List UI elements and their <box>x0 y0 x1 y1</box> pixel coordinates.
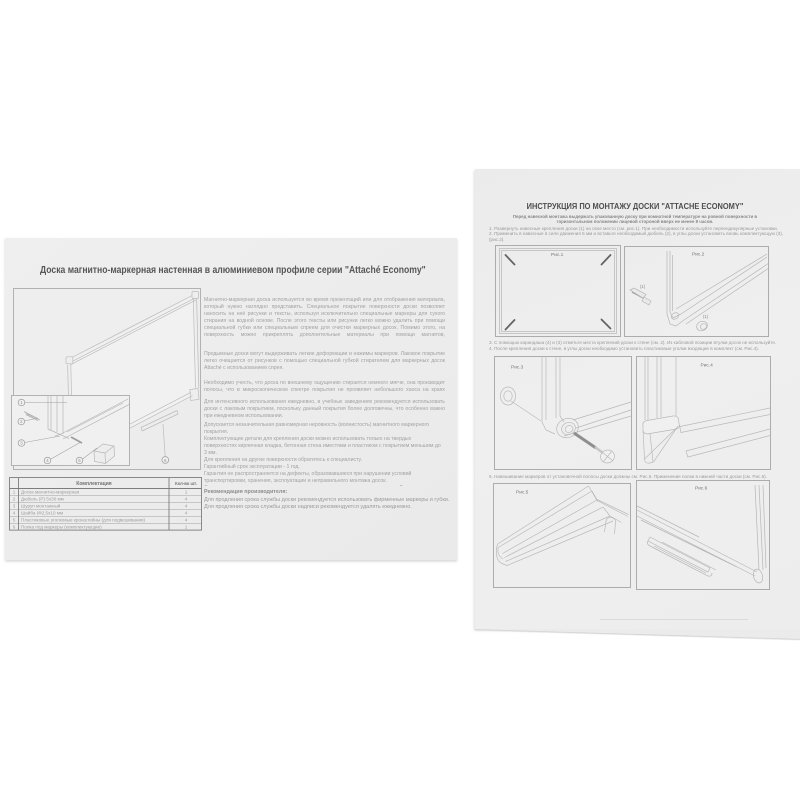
svg-text:4: 4 <box>185 518 188 523</box>
svg-text:Дюбель (P) 5х30 мм: Дюбель (P) 5х30 мм <box>21 497 64 502</box>
svg-text:5: 5 <box>13 518 16 523</box>
svg-text:Рис.4: Рис.4 <box>701 363 714 369</box>
svg-text:4: 4 <box>185 504 188 509</box>
svg-text:2: 2 <box>13 497 16 502</box>
svg-text:Рис.3: Рис.3 <box>511 365 524 371</box>
svg-text:Пластиковые уголковые кронштей: Пластиковые уголковые кронштейны (для по… <box>21 517 146 523</box>
svg-text:Рис.5: Рис.5 <box>516 490 529 496</box>
svg-text:1: 1 <box>13 490 16 495</box>
svg-text:6: 6 <box>13 525 16 530</box>
svg-text:1: 1 <box>185 525 188 530</box>
svg-text:(1): (1) <box>703 314 709 319</box>
svg-text:Рис.1: Рис.1 <box>551 252 564 258</box>
svg-text:Рис.6: Рис.6 <box>695 486 708 492</box>
svg-text:Полка под маркеры (комплектующ: Полка под маркеры (комплектующие) <box>21 525 102 530</box>
svg-text:4: 4 <box>185 511 188 516</box>
svg-text:(1): (1) <box>640 284 646 289</box>
svg-text:1: 1 <box>185 490 188 495</box>
svg-text:Шайба (Ф2,5х10 мм: Шайба (Ф2,5х10 мм <box>21 510 63 516</box>
svg-text:Шуруп монтажный: Шуруп монтажный <box>21 503 61 509</box>
svg-text:4: 4 <box>13 511 16 516</box>
svg-text:Кол-во шт.: Кол-во шт. <box>175 481 197 486</box>
svg-text:3: 3 <box>13 504 16 509</box>
svg-text:Доска магнитно-маркерная: Доска магнитно-маркерная <box>21 490 80 495</box>
svg-text:Комплектация: Комплектация <box>76 481 112 487</box>
svg-text:Рис.2: Рис.2 <box>692 252 705 258</box>
svg-text:4: 4 <box>185 497 188 502</box>
